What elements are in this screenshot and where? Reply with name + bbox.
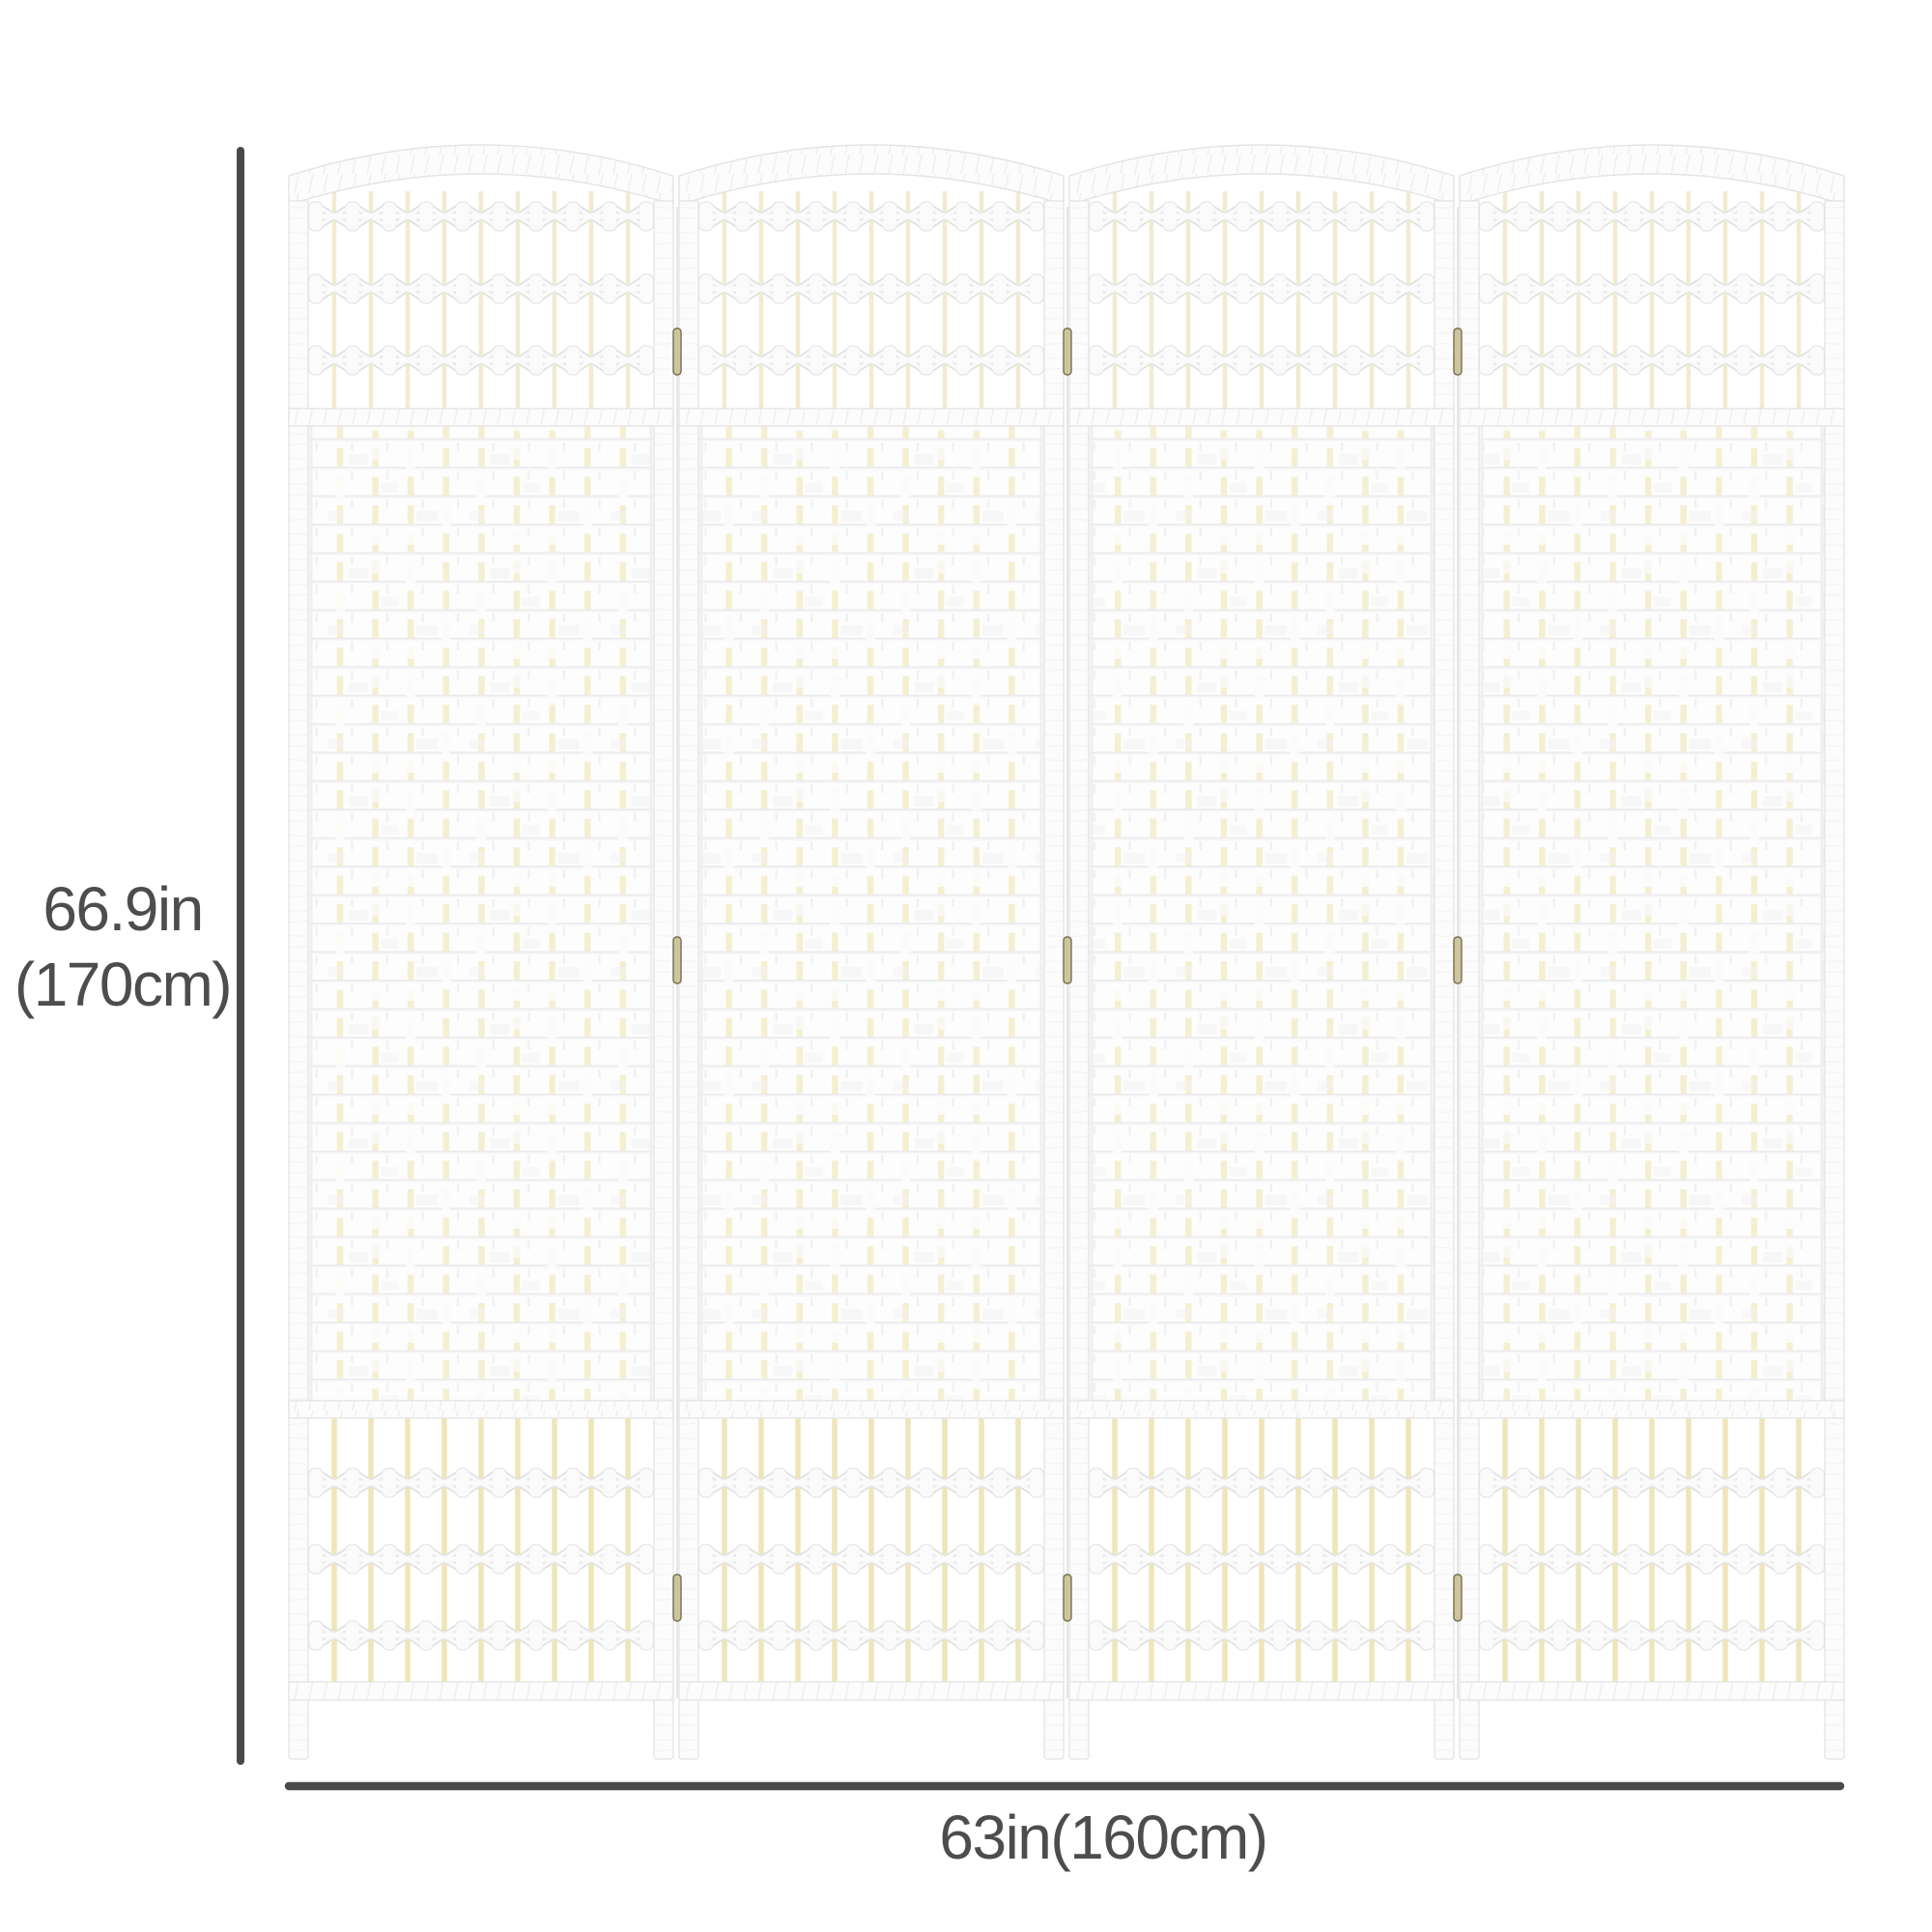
svg-text:(170cm): (170cm): [14, 950, 231, 1019]
svg-text:63in(160cm): 63in(160cm): [939, 1803, 1266, 1872]
svg-text:66.9in: 66.9in: [43, 874, 202, 944]
